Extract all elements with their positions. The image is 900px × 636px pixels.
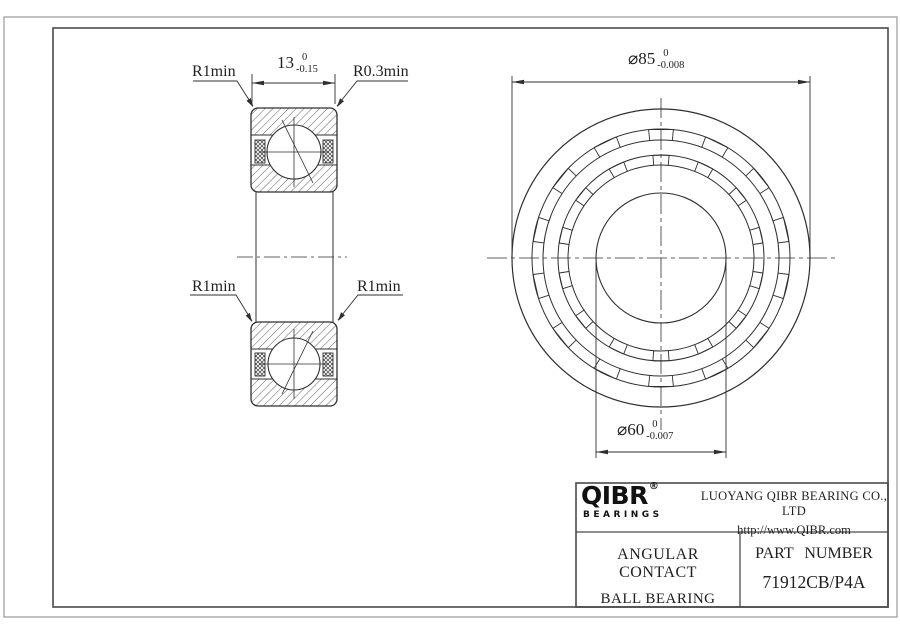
cage-section-right-bottom [323,353,333,376]
company-name: LUOYANG QIBR BEARING CO., LTD [700,489,888,519]
engineering-drawing-page: R1min R0.3min R1min R1min 13 0 -0.15 ⌀85… [0,0,900,636]
dim-width-lines [252,74,335,104]
drawing-canvas [0,0,900,636]
radius-label-top-left: R1min [192,64,236,80]
qibr-logo: QIBR ® BEARINGS [581,484,663,520]
dim-od-tolerance: 0 -0.008 [657,48,684,72]
section-view [237,108,347,406]
dim-bore-tolerance: 0 -0.007 [646,419,673,443]
part-number-value: 71912CB/P4A [742,572,886,593]
registered-trademark-symbol: ® [649,481,659,492]
company-url: http://www.QIBR.com [700,523,888,538]
cage-section-left-bottom [255,353,265,376]
dim-width-tolerance: 0 -0.15 [296,52,318,76]
radius-label-top-right: R0.3min [353,64,409,80]
dim-bore-value: ⌀60 [617,421,644,438]
dim-width-value: 13 [277,54,294,71]
product-type-cell: ANGULAR CONTACT BALL BEARING [578,546,738,608]
radius-label-mid-right: R1min [357,279,401,295]
company-info: LUOYANG QIBR BEARING CO., LTD http://www… [700,489,888,538]
part-number-label: PART NUMBER [742,545,886,563]
dim-od-text: ⌀85 0 -0.008 [628,50,684,72]
radius-label-mid-left: R1min [192,279,236,295]
cage-section-right-top [323,140,333,163]
dim-width-text: 13 0 -0.15 [277,54,318,76]
part-number-cell: PART NUMBER 71912CB/P4A [742,545,886,593]
dim-bore-text: ⌀60 0 -0.007 [617,421,673,443]
dim-od-value: ⌀85 [628,50,655,67]
product-type-line1: ANGULAR CONTACT [578,546,738,582]
cage-section-left-top [255,140,265,163]
front-view [487,98,836,430]
logo-subtext: BEARINGS [581,510,663,520]
product-type-line2: BALL BEARING [578,591,738,608]
logo-wordmark: QIBR [581,484,648,508]
